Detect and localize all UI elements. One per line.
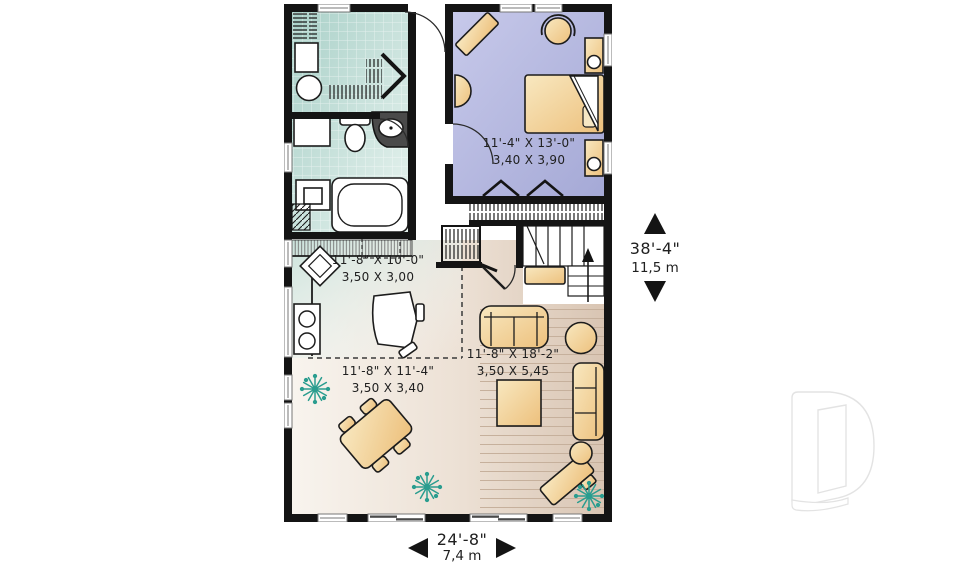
bedroom-dimension-label: 11'-4" X 13'-0" 3,40 X 3,90 [454, 135, 604, 169]
window [604, 142, 612, 174]
coffee-table [497, 380, 541, 426]
width-metric: 7,4 m [443, 548, 482, 564]
sliding-window [470, 514, 527, 522]
window [284, 240, 292, 267]
washer [294, 116, 330, 146]
closet-rod [366, 59, 382, 99]
sliding-window [368, 514, 425, 522]
window [318, 4, 350, 12]
back-door-opening [408, 4, 445, 12]
window [553, 514, 582, 522]
depth-metric: 11,5 m [631, 260, 679, 276]
dimension-imperial: 11'-8" X 18'-2" [438, 346, 588, 363]
window [284, 143, 292, 172]
floor-plan-page: 11'-4" X 13'-0" 3,40 X 3,90 11'-8" X 10'… [0, 0, 960, 569]
dimension-imperial: 11'-4" X 13'-0" [454, 135, 604, 152]
down-arrow-icon [644, 281, 666, 302]
kitchen-island [373, 292, 417, 348]
right-arrow-icon [496, 538, 516, 558]
builder-d-logo [786, 386, 878, 526]
logo-door [818, 405, 846, 493]
left-arrow-icon [408, 538, 428, 558]
width-dimension: 24'-8" 7,4 m [394, 532, 530, 564]
living-dimension-label: 11'-8" X 18'-2" 3,50 X 5,45 [438, 346, 588, 380]
chair [570, 442, 592, 464]
window [284, 287, 292, 357]
wire-shelf [328, 83, 368, 99]
window [284, 375, 292, 400]
up-arrow-icon [644, 213, 666, 234]
stool [416, 304, 424, 321]
stair-bench [525, 267, 565, 284]
shelving-unit [293, 13, 317, 39]
window [318, 514, 347, 522]
stair-landing [568, 266, 604, 296]
window [500, 4, 532, 12]
bathtub [332, 178, 408, 232]
depth-dimension: 38'-4" 11,5 m [618, 213, 692, 302]
dimension-metric: 3,50 X 3,40 [313, 380, 463, 397]
kitchen-dimension-label: 11'-8" X 10'-0" 3,50 X 3,00 [303, 252, 453, 286]
freezer [295, 43, 318, 72]
dimension-metric: 3,40 X 3,90 [454, 152, 604, 169]
bedroom-closet-rod [469, 204, 604, 220]
window [604, 34, 612, 66]
dimension-metric: 3,50 X 3,00 [303, 269, 453, 286]
window [535, 4, 562, 12]
dimension-imperial: 11'-8" X 10'-0" [303, 252, 453, 269]
depth-imperial: 38'-4" [630, 239, 680, 258]
chimney-chase [292, 204, 310, 230]
corner-chair [545, 18, 571, 44]
window [284, 403, 292, 428]
dimension-metric: 3,50 X 5,45 [438, 363, 588, 380]
toilet [345, 125, 365, 152]
width-imperial: 24'-8" [437, 532, 487, 548]
water-heater [297, 76, 322, 101]
